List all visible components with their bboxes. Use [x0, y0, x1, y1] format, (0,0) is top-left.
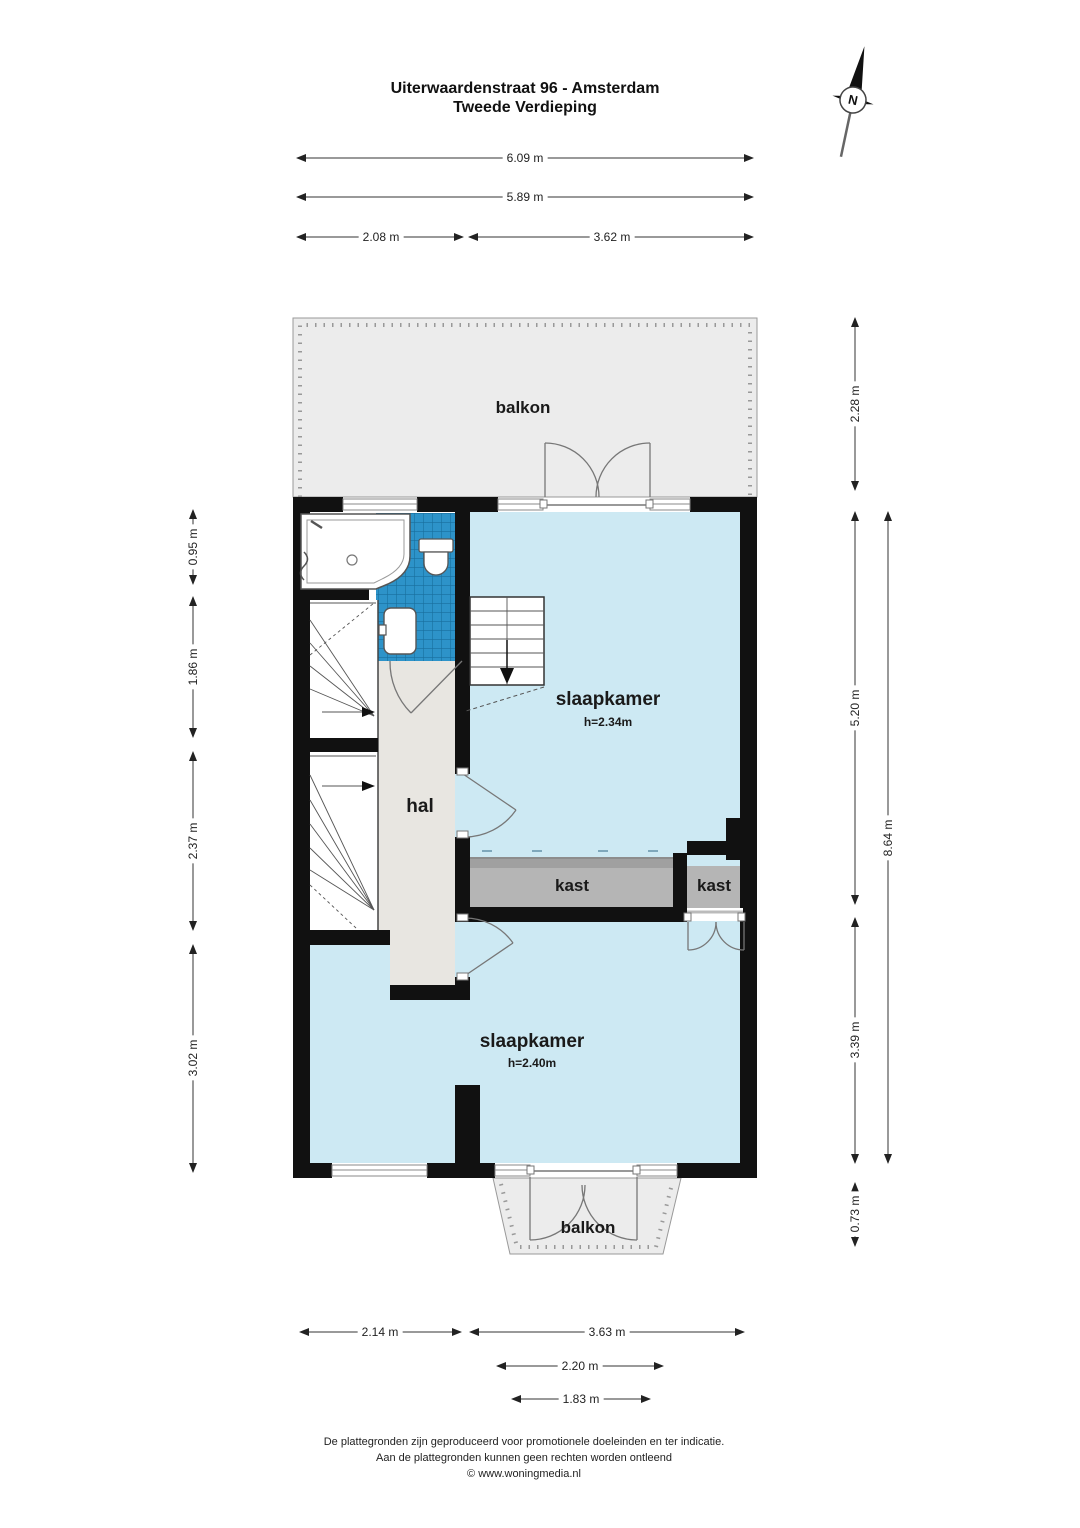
floorplan-drawing	[0, 0, 1080, 1528]
dim-left-1: 0.95 m	[186, 525, 200, 570]
dim-right-upper: 5.20 m	[848, 686, 862, 731]
room-height-bedroom-top: h=2.34m	[584, 715, 632, 729]
dim-top-left: 2.08 m	[359, 230, 404, 244]
balcony-bottom	[493, 1178, 681, 1254]
room-label-hall: hal	[406, 796, 433, 818]
dim-top-inner: 5.89 m	[503, 190, 548, 204]
dim-right-lower: 3.39 m	[848, 1018, 862, 1063]
plan-title-address: Uiterwaardenstraat 96 - Amsterdam	[391, 80, 660, 98]
dim-left-3: 2.37 m	[186, 819, 200, 864]
room-label-balcony-bottom: balkon	[561, 1218, 616, 1238]
room-label-closet-large: kast	[555, 876, 589, 896]
dim-right-total: 8.64 m	[881, 816, 895, 861]
dim-right-balcony: 2.28 m	[848, 382, 862, 427]
plan-title-floor: Tweede Verdieping	[453, 99, 597, 117]
dim-top-right: 3.62 m	[590, 230, 635, 244]
dim-right-balcony-bottom: 0.73 m	[848, 1192, 862, 1237]
room-height-bedroom-bottom: h=2.40m	[508, 1056, 556, 1070]
dim-bottom-balcony-outer: 2.20 m	[558, 1359, 603, 1373]
room-label-balcony-top: balkon	[496, 398, 551, 418]
floorplan-page: Uiterwaardenstraat 96 - Amsterdam Tweede…	[0, 0, 1080, 1528]
dim-bottom-balcony-inner: 1.83 m	[559, 1392, 604, 1406]
bathtub	[301, 514, 411, 589]
dim-bottom-right: 3.63 m	[585, 1325, 630, 1339]
footer-copyright: © www.woningmedia.nl	[467, 1468, 581, 1480]
room-label-bedroom-top: slaapkamer	[556, 689, 661, 711]
dim-top-total: 6.09 m	[503, 151, 548, 165]
dim-bottom-left: 2.14 m	[358, 1325, 403, 1339]
room-label-bedroom-bottom: slaapkamer	[480, 1031, 585, 1053]
washbasin	[379, 608, 416, 654]
footer-disclaimer-1: De plattegronden zijn geproduceerd voor …	[324, 1436, 725, 1448]
footer-disclaimer-2: Aan de plattegronden kunnen geen rechten…	[376, 1452, 672, 1464]
dim-left-2: 1.86 m	[186, 645, 200, 690]
room-label-closet-small: kast	[697, 876, 731, 896]
dim-left-4: 3.02 m	[186, 1036, 200, 1081]
